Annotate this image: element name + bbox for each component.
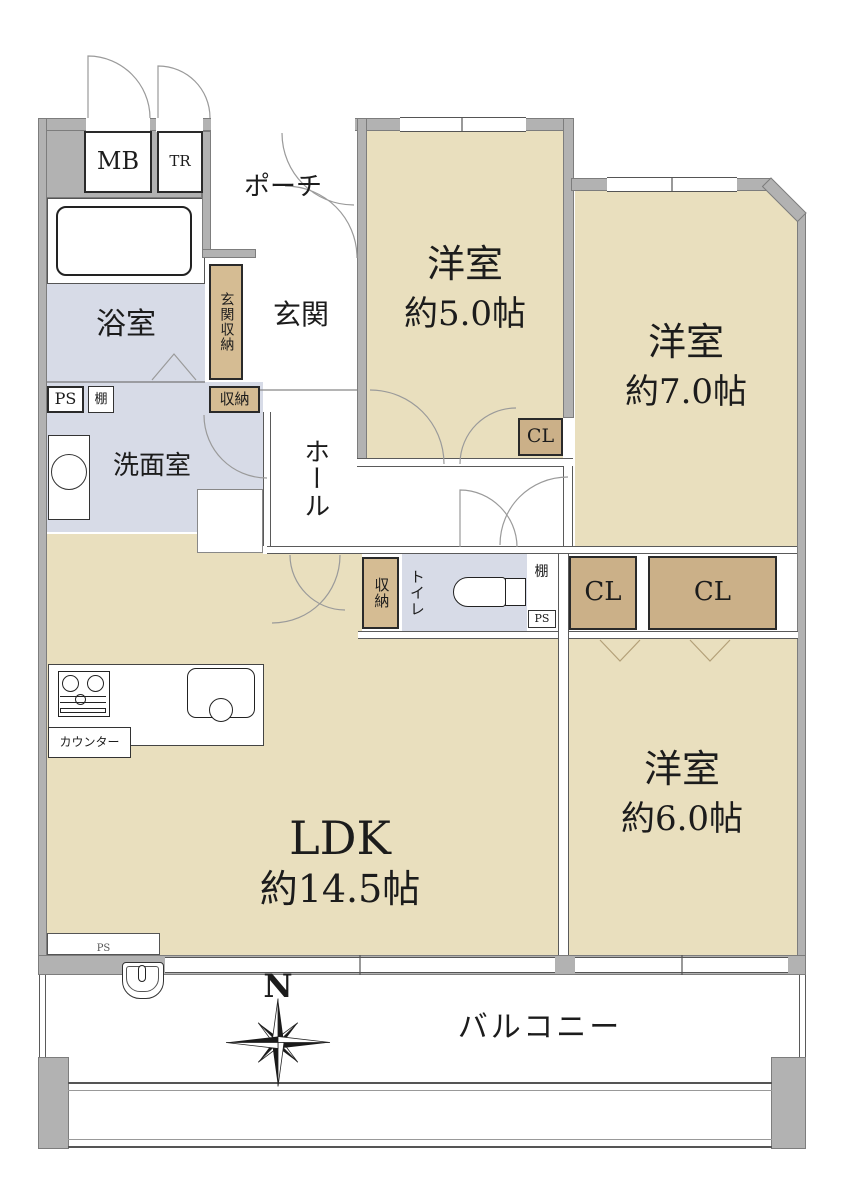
closet-right-box: CL <box>648 556 777 630</box>
room6-name-label: 洋室 <box>568 745 796 795</box>
window-ldk-balcony <box>165 957 555 973</box>
partition-washroom-hall <box>263 412 271 546</box>
compass-rose-icon <box>222 995 334 1090</box>
ps-mid-box: PS <box>528 610 556 628</box>
window-room7 <box>607 177 737 192</box>
shelf-mid-label: 棚 <box>525 558 558 586</box>
toilet-label: トイレ <box>403 558 429 628</box>
stove-grill-line2 <box>60 702 106 703</box>
ps-left-box: PS <box>47 386 84 413</box>
door-arc-toilet <box>460 490 517 547</box>
partition-room5-bottom <box>357 458 573 467</box>
entrance-label: 玄関 <box>245 295 357 335</box>
slop-sink-icon <box>122 962 164 999</box>
stove-grill-line1 <box>60 696 106 697</box>
wall-left <box>38 118 47 975</box>
room5-size-label: 約5.0帖 <box>367 292 563 338</box>
partition-strip-bottom <box>358 631 798 639</box>
balcony-rail-line2 <box>68 1090 772 1091</box>
counter-label-box: カウンター <box>48 727 131 758</box>
shelf-left-label: 棚 <box>94 393 107 407</box>
toilet-bowl-icon <box>453 577 506 607</box>
trunk-room-box: TR <box>157 131 203 193</box>
bathtub-icon <box>56 206 192 276</box>
closet-left-box: CL <box>569 556 637 630</box>
meter-box-label: MB <box>97 149 139 174</box>
stove-grill-bar <box>60 708 106 713</box>
wall-porch-bottom <box>202 249 256 258</box>
ldk-name-label: LDK <box>160 810 520 866</box>
bath-label: 浴室 <box>47 305 205 345</box>
ps-left-label: PS <box>55 391 77 408</box>
balcony-rail-line1 <box>68 1082 772 1084</box>
trunk-room-label: TR <box>169 154 190 170</box>
door-arc-tr <box>158 66 210 118</box>
washer-pan <box>197 489 263 553</box>
ps-bottom-box: PS <box>47 933 160 955</box>
wall-room5-room7 <box>563 118 574 418</box>
floor-plan: MB TR 玄関収納 収納 PS 棚 CL 収納 PS CL CL <box>0 0 844 1200</box>
room6-size-label: 約6.0帖 <box>568 797 796 843</box>
entrance-storage-label: 玄関収納 <box>219 292 234 352</box>
stove-burner-left <box>62 675 79 692</box>
meter-box: MB <box>84 131 152 193</box>
opening-porch <box>211 117 355 132</box>
room7-name-label: 洋室 <box>575 318 797 368</box>
storage-top-label: 収納 <box>219 392 249 408</box>
washroom-label: 洗面室 <box>47 448 257 486</box>
storage-mid-box: 収納 <box>362 557 399 629</box>
shelf-left-box: 棚 <box>88 386 114 413</box>
window-room5 <box>400 117 526 132</box>
wall-right <box>797 211 806 975</box>
storage-mid-label: 収納 <box>373 577 389 609</box>
hall-label: ホール <box>296 408 332 548</box>
closet-right-label: CL <box>694 579 731 606</box>
balcony-side-right <box>799 975 806 1059</box>
room5-name-label: 洋室 <box>367 240 563 290</box>
ps-mid-label: PS <box>535 613 550 625</box>
partition-hall-room7 <box>563 466 573 547</box>
door-arc-mb <box>88 56 150 118</box>
compass-diagonals <box>255 1020 300 1065</box>
stove-burner-right <box>87 675 104 692</box>
stove-icon <box>58 671 110 717</box>
window-room6-balcony <box>575 957 788 973</box>
toilet-tank-icon <box>505 578 526 606</box>
wall-porch-left <box>202 131 211 257</box>
slop-sink-faucet <box>138 965 146 982</box>
compass-north-label: N <box>256 970 300 1004</box>
opening-mb <box>86 117 150 132</box>
closet-room5-box: CL <box>518 418 563 456</box>
ldk-size-label: 約14.5帖 <box>160 866 520 914</box>
compass-cardinals <box>226 999 330 1087</box>
balcony-pillar-left <box>38 1057 69 1149</box>
door-arc-room7 <box>500 477 568 545</box>
wall-entrance-room5 <box>357 118 367 466</box>
sink-faucet-icon <box>209 698 233 722</box>
balcony-rail-line4 <box>68 1146 772 1148</box>
partition-hall-bottom <box>267 546 797 554</box>
closet-room5-label: CL <box>527 427 554 447</box>
balcony-label: バルコニー <box>400 1008 680 1048</box>
ps-bottom-label: PS <box>97 944 111 955</box>
storage-top-box: 収納 <box>209 386 260 413</box>
room7-size-label: 約7.0帖 <box>575 370 797 416</box>
counter-label: カウンター <box>59 736 119 749</box>
opening-tr <box>156 117 203 132</box>
closet-left-label: CL <box>584 579 621 606</box>
porch-label: ポーチ <box>213 170 353 206</box>
balcony-side-left <box>39 975 46 1059</box>
balcony-rail-line3 <box>68 1139 772 1140</box>
entrance-storage-box: 玄関収納 <box>209 264 243 380</box>
balcony-pillar-right <box>771 1057 806 1149</box>
